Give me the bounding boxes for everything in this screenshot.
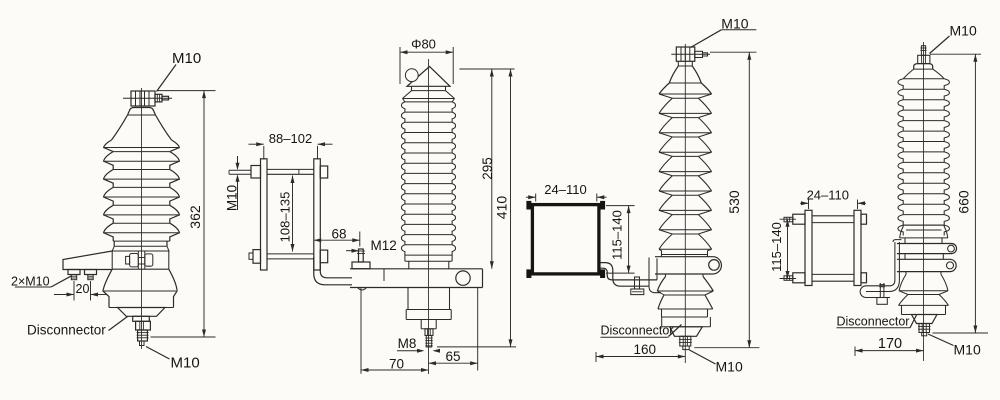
svg-text:2×M10: 2×M10	[11, 275, 50, 289]
svg-text:362: 362	[187, 205, 203, 229]
svg-text:M10: M10	[950, 23, 977, 39]
svg-text:M8: M8	[398, 336, 417, 351]
svg-text:530: 530	[726, 190, 742, 214]
svg-text:115–140: 115–140	[610, 210, 625, 260]
svg-text:M10: M10	[171, 355, 200, 372]
svg-text:Disconnector: Disconnector	[27, 323, 106, 338]
svg-text:Φ80: Φ80	[411, 37, 436, 52]
svg-text:410: 410	[494, 196, 510, 220]
svg-text:660: 660	[956, 190, 972, 214]
svg-text:170: 170	[878, 336, 902, 352]
svg-text:24–110: 24–110	[544, 182, 586, 197]
svg-text:108–135: 108–135	[278, 192, 293, 243]
svg-text:M10: M10	[225, 185, 240, 211]
svg-text:24–110: 24–110	[807, 188, 849, 203]
svg-text:65: 65	[445, 349, 460, 364]
svg-text:Disconnector: Disconnector	[837, 315, 910, 329]
svg-text:160: 160	[634, 342, 657, 357]
svg-text:M10: M10	[716, 359, 743, 375]
svg-text:20: 20	[76, 282, 90, 296]
svg-text:88–102: 88–102	[269, 131, 312, 146]
svg-text:M10: M10	[954, 342, 981, 358]
svg-text:70: 70	[389, 357, 404, 372]
svg-text:68: 68	[331, 227, 346, 242]
svg-text:M12: M12	[371, 238, 397, 253]
svg-text:M10: M10	[172, 50, 201, 67]
svg-text:115–140: 115–140	[769, 222, 784, 272]
svg-text:M10: M10	[721, 16, 748, 32]
svg-text:Disconnector: Disconnector	[601, 324, 674, 338]
svg-text:295: 295	[480, 157, 495, 180]
